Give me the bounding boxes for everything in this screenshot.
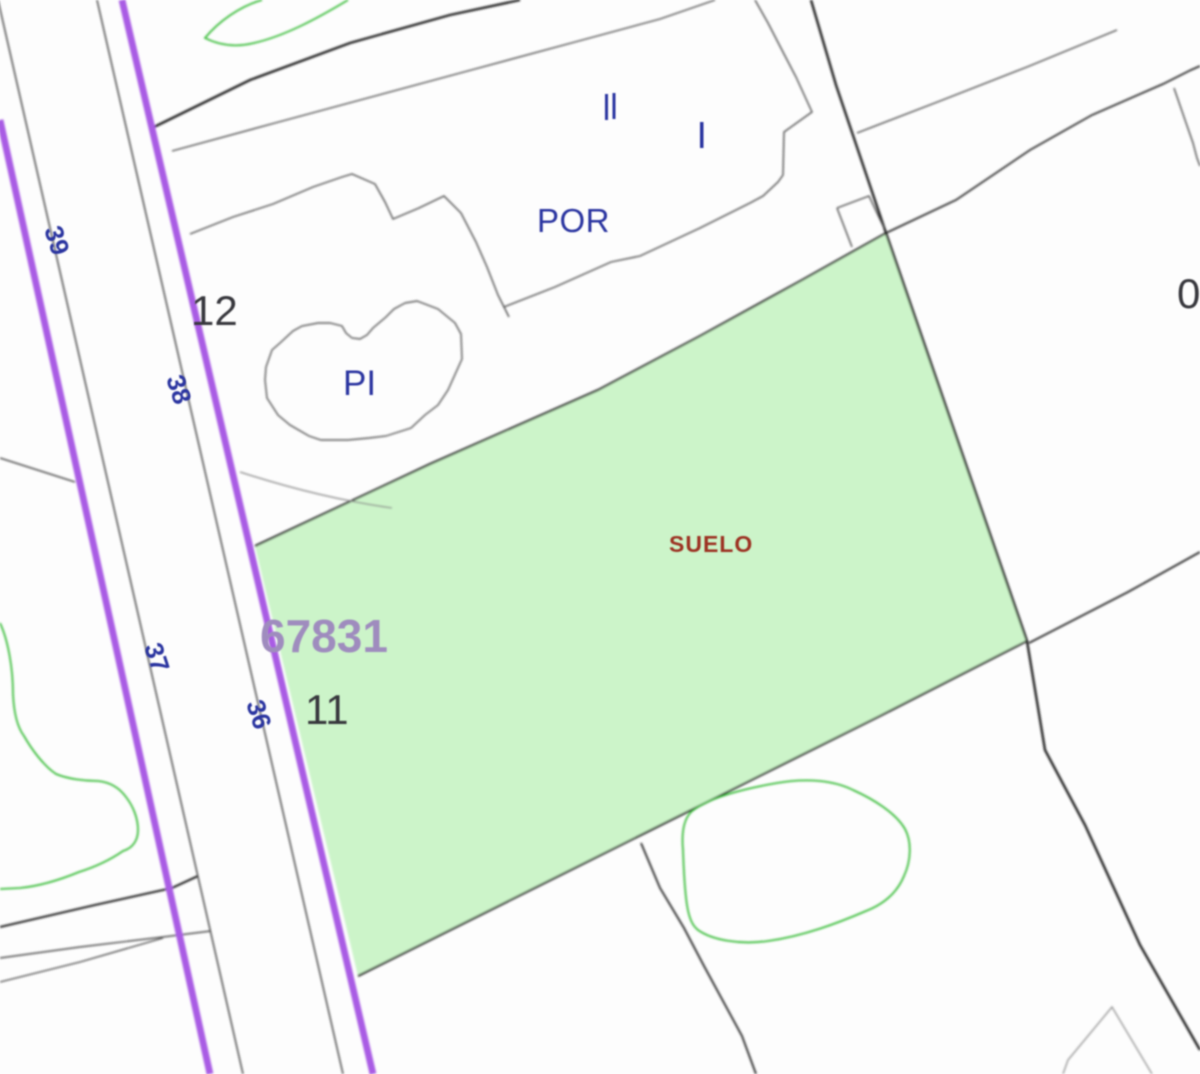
- svg-text:PI: PI: [343, 364, 376, 403]
- svg-text:12: 12: [191, 287, 238, 334]
- svg-text:0: 0: [1177, 270, 1200, 317]
- svg-text:67831: 67831: [260, 610, 388, 662]
- svg-text:SUELO: SUELO: [669, 531, 753, 557]
- svg-text:11: 11: [305, 686, 349, 733]
- svg-text:POR: POR: [537, 202, 610, 239]
